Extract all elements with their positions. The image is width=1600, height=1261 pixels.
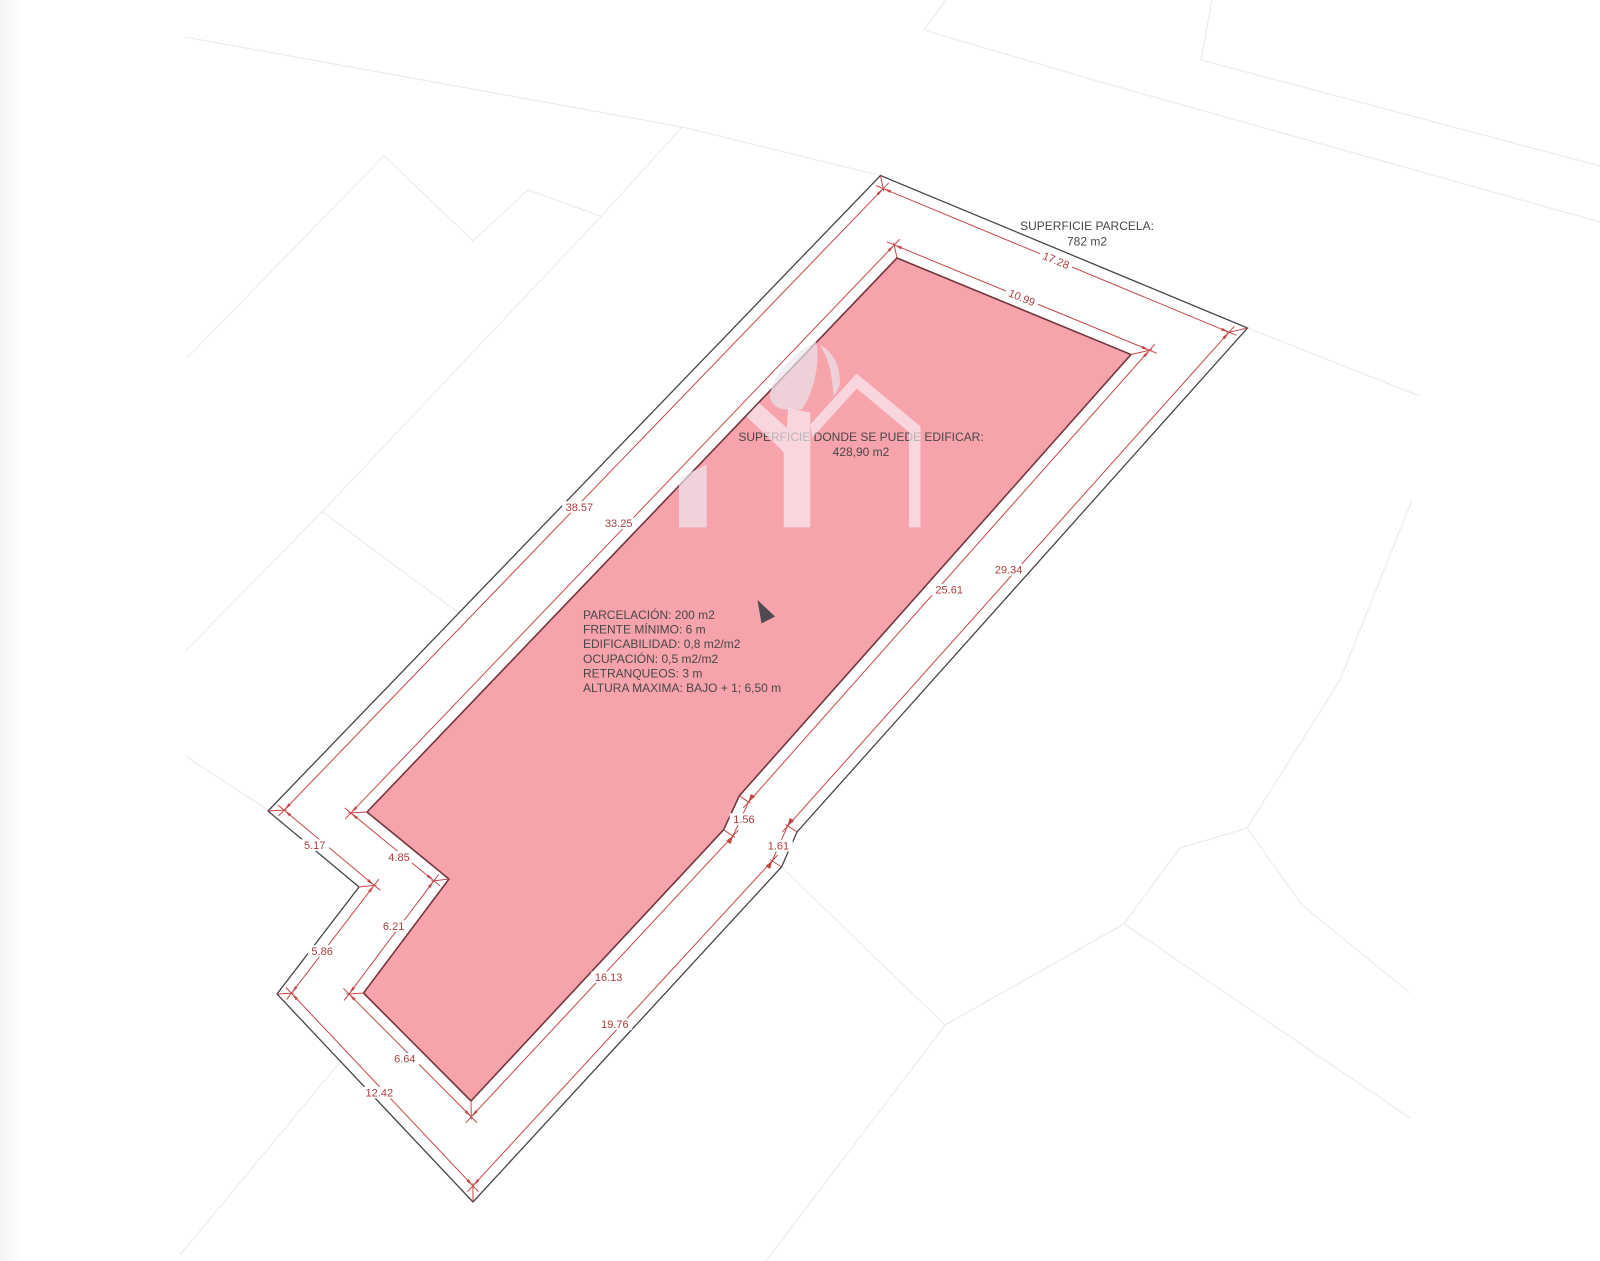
svg-text:ALTURA MAXIMA: BAJO + 1; 6,50: ALTURA MAXIMA: BAJO + 1; 6,50 m xyxy=(583,681,781,695)
svg-text:FRENTE MÍNIMO: 6 m: FRENTE MÍNIMO: 6 m xyxy=(583,622,706,637)
svg-text:6.21: 6.21 xyxy=(383,921,404,933)
svg-text:4.85: 4.85 xyxy=(388,852,409,864)
svg-text:12.42: 12.42 xyxy=(366,1087,394,1099)
svg-text:17.28: 17.28 xyxy=(1041,250,1071,272)
svg-text:SUPERFICIE PARCELA:: SUPERFICIE PARCELA: xyxy=(1020,219,1154,233)
svg-text:16.13: 16.13 xyxy=(595,972,623,984)
svg-text:1.56: 1.56 xyxy=(733,814,754,826)
svg-text:782 m2: 782 m2 xyxy=(1067,235,1107,249)
svg-text:1.61: 1.61 xyxy=(768,841,789,853)
svg-text:PARCELACIÓN: 200 m2: PARCELACIÓN: 200 m2 xyxy=(583,607,715,622)
svg-text:33.25: 33.25 xyxy=(605,518,633,530)
svg-text:38.57: 38.57 xyxy=(566,502,594,514)
svg-text:19.76: 19.76 xyxy=(601,1019,629,1031)
svg-text:29.34: 29.34 xyxy=(995,565,1023,577)
svg-text:5.86: 5.86 xyxy=(311,946,332,958)
svg-text:5.17: 5.17 xyxy=(304,840,325,852)
svg-text:OCUPACIÓN: 0,5 m2/m2: OCUPACIÓN: 0,5 m2/m2 xyxy=(583,651,718,666)
svg-text:25.61: 25.61 xyxy=(935,585,963,597)
svg-text:6.64: 6.64 xyxy=(394,1054,415,1066)
svg-text:EDIFICABILIDAD: 0,8 m2/m2: EDIFICABILIDAD: 0,8 m2/m2 xyxy=(583,637,741,651)
svg-text:RETRANQUEOS: 3 m: RETRANQUEOS: 3 m xyxy=(583,666,702,680)
svg-text:428,90 m2: 428,90 m2 xyxy=(833,445,890,459)
